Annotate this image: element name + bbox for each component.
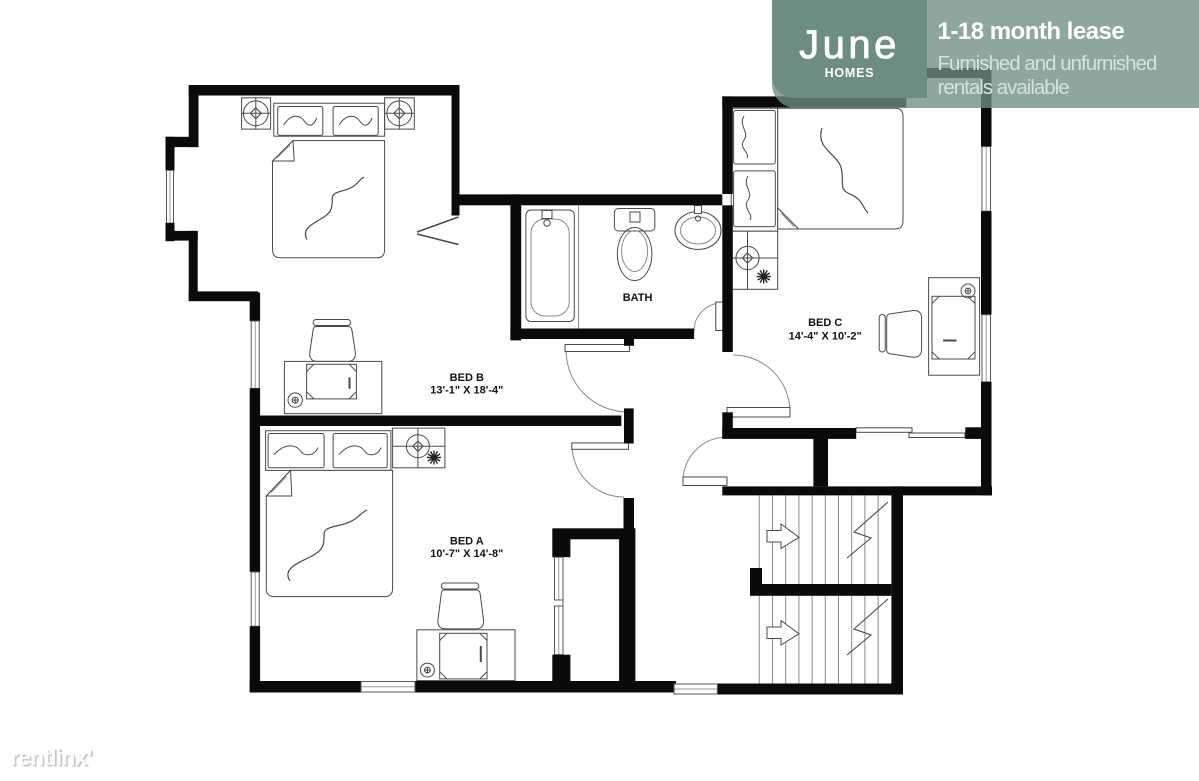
svg-text:14'-4" X 10'-2": 14'-4" X 10'-2" xyxy=(789,331,862,343)
svg-text:10'-7" X 14'-8": 10'-7" X 14'-8" xyxy=(430,548,503,560)
svg-text:BED A: BED A xyxy=(450,536,484,548)
svg-text:13'-1" X 18'-4": 13'-1" X 18'-4" xyxy=(430,385,503,397)
svg-text:BED B: BED B xyxy=(450,372,484,384)
svg-text:BED C: BED C xyxy=(808,317,842,329)
svg-text:BATH: BATH xyxy=(623,292,653,304)
